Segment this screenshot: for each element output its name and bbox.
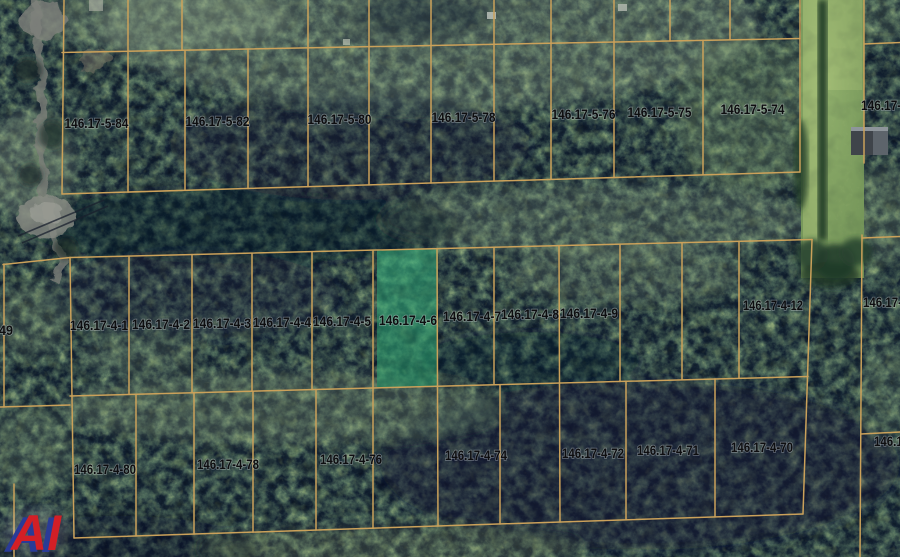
svg-text:146.17-4-80: 146.17-4-80	[74, 461, 136, 477]
svg-text:146.17-4-2: 146.17-4-2	[132, 316, 190, 332]
svg-text:146.17-4-74: 146.17-4-74	[445, 447, 507, 463]
svg-text:146.17-4-78: 146.17-4-78	[197, 456, 259, 472]
svg-text:146.17-4-70: 146.17-4-70	[731, 439, 793, 455]
svg-text:146.17-5-75: 146.17-5-75	[628, 104, 692, 120]
svg-text:146.17-4-7: 146.17-4-7	[443, 308, 501, 324]
svg-text:146.17-5-80: 146.17-5-80	[308, 111, 372, 127]
svg-text:49: 49	[0, 322, 13, 338]
svg-text:146.17-5-78: 146.17-5-78	[432, 109, 496, 125]
svg-text:146.17-4-71: 146.17-4-71	[637, 442, 699, 458]
svg-text:146.17-4-69: 146.17-4-69	[874, 433, 900, 449]
svg-text:146.17-5-84: 146.17-5-84	[65, 115, 129, 131]
svg-text:146.17-4-4: 146.17-4-4	[253, 314, 311, 330]
svg-text:146.17-4-9: 146.17-4-9	[560, 305, 618, 321]
svg-text:146.17-4-76: 146.17-4-76	[320, 451, 382, 467]
svg-text:146.17-5-82: 146.17-5-82	[186, 113, 250, 129]
svg-text:146.17-4-8: 146.17-4-8	[501, 306, 559, 322]
svg-text:146.17-5-74: 146.17-5-74	[721, 101, 785, 117]
svg-text:146.17-4-5: 146.17-4-5	[313, 313, 371, 329]
svg-text:146.17-5-73: 146.17-5-73	[861, 97, 900, 113]
svg-text:146.17-4-12: 146.17-4-12	[743, 297, 803, 313]
svg-text:146.17-4-1: 146.17-4-1	[70, 317, 128, 333]
svg-text:146.17-4-3: 146.17-4-3	[193, 315, 251, 331]
svg-text:146.17-5-76: 146.17-5-76	[552, 106, 616, 122]
svg-text:146.17-4-6: 146.17-4-6	[379, 312, 437, 328]
svg-text:146.17-4-13: 146.17-4-13	[863, 294, 900, 310]
svg-text:AI: AI	[9, 505, 62, 557]
svg-text:146.17-4-72: 146.17-4-72	[562, 445, 624, 461]
